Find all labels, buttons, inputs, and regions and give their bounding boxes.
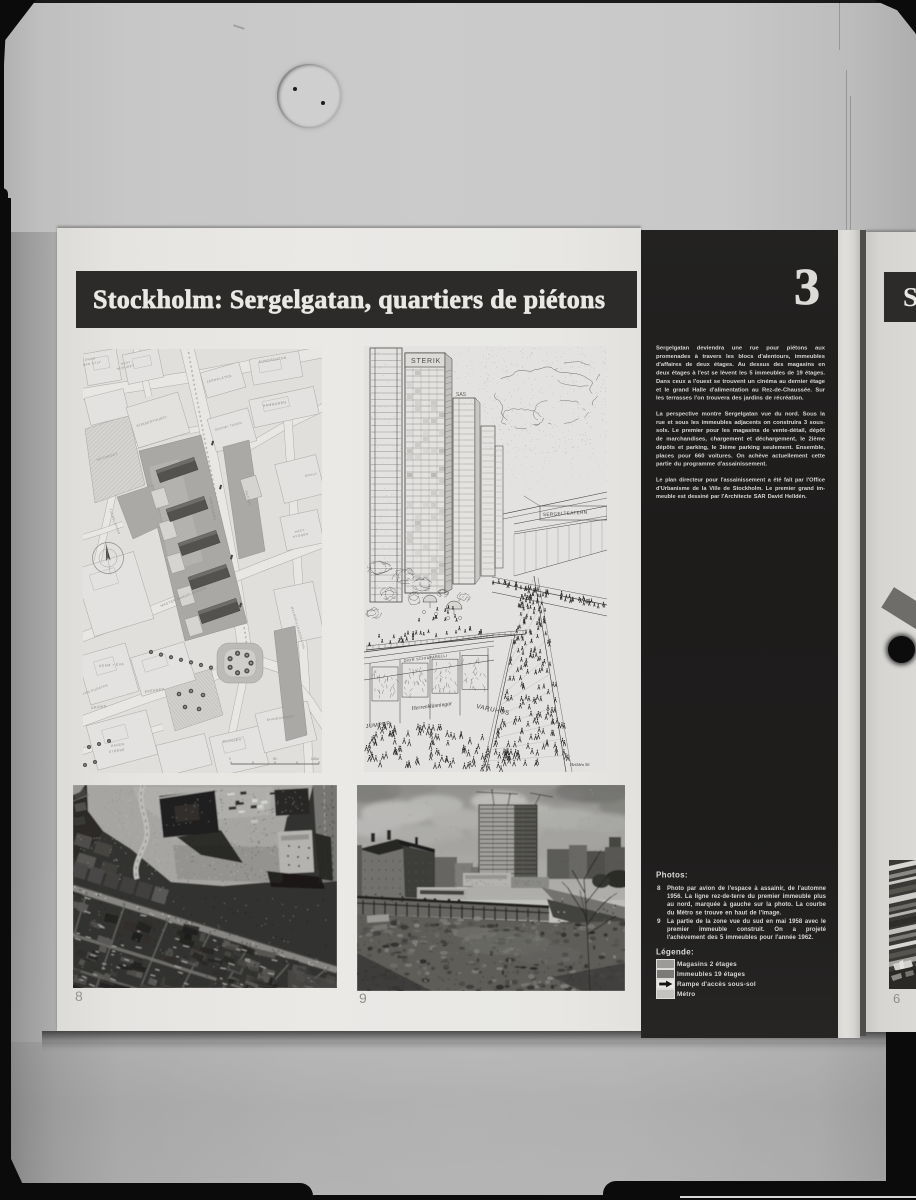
svg-text:Helldén 56: Helldén 56 [569, 762, 590, 767]
svg-text:SAS: SAS [456, 392, 467, 398]
svg-text:50: 50 [273, 757, 277, 761]
svg-text:0: 0 [229, 757, 231, 761]
svg-text:STERIK: STERIK [411, 358, 441, 365]
svg-text:100m: 100m [311, 757, 319, 761]
